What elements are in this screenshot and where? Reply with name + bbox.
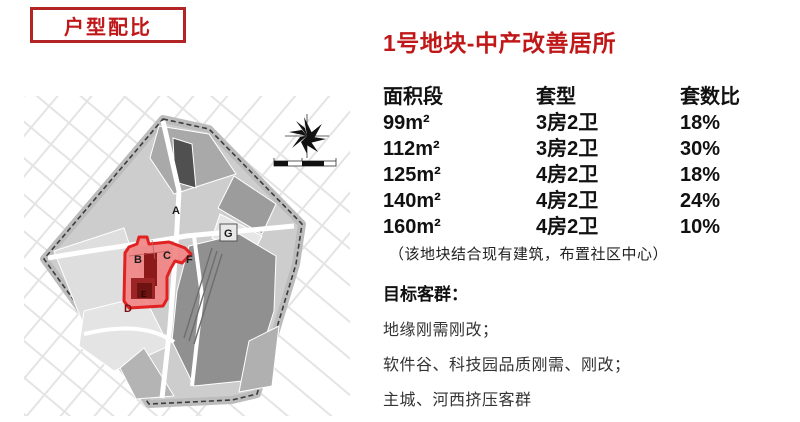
table-header-ratio: 套数比 — [675, 84, 783, 110]
site-plan-svg: A B C D E F G — [24, 96, 350, 416]
site-plan-map: A B C D E F G — [24, 96, 350, 416]
target-customers-heading: 目标客群： — [383, 280, 783, 305]
block-heading: 1号地块-中产改善居所 — [383, 24, 783, 58]
slide: 户型配比 — [0, 0, 800, 422]
table-cell: 99m² — [383, 110, 531, 136]
parcel-label-g: G — [224, 228, 233, 240]
parcel-label-d: D — [124, 303, 132, 315]
table-cell: 30% — [675, 136, 783, 162]
table-cell: 140m² — [383, 188, 531, 214]
table-cell: 4房2卫 — [531, 188, 675, 214]
parcel-label-b: B — [134, 254, 142, 266]
table-note: （该地块结合现有建筑，布置社区中心） — [383, 243, 783, 264]
table-cell: 18% — [675, 110, 783, 136]
page-title-box: 户型配比 — [30, 7, 186, 43]
north-compass-icon — [285, 114, 329, 158]
parcel-label-f: F — [186, 254, 193, 266]
table-cell: 10% — [675, 214, 783, 240]
target-line: 地缘刚需刚改； — [383, 316, 783, 340]
table-cell: 4房2卫 — [531, 162, 675, 188]
target-line: 软件谷、科技园品质刚需、刚改； — [383, 351, 783, 375]
scale-bar-icon — [274, 158, 336, 166]
table-cell: 160m² — [383, 214, 531, 240]
table-cell: 24% — [675, 188, 783, 214]
unit-mix-table: 面积段 套型 套数比 99m² 3房2卫 18% 112m² 3房2卫 30% … — [383, 84, 783, 240]
parcel-label-c: C — [163, 250, 171, 262]
info-panel: 1号地块-中产改善居所 面积段 套型 套数比 99m² 3房2卫 18% 112… — [383, 24, 783, 422]
target-line: 主城、河西挤压客群 — [383, 386, 783, 410]
table-header-type: 套型 — [531, 84, 675, 110]
table-cell: 18% — [675, 162, 783, 188]
target-customers-block: 目标客群： 地缘刚需刚改； 软件谷、科技园品质刚需、刚改； 主城、河西挤压客群 … — [383, 280, 783, 422]
parcel-label-e: E — [141, 290, 147, 299]
table-cell: 125m² — [383, 162, 531, 188]
parcel-label-a: A — [172, 205, 180, 217]
table-header-area: 面积段 — [383, 84, 531, 110]
table-cell: 112m² — [383, 136, 531, 162]
table-cell: 3房2卫 — [531, 110, 675, 136]
table-cell: 4房2卫 — [531, 214, 675, 240]
table-cell: 3房2卫 — [531, 136, 675, 162]
page-title: 户型配比 — [64, 11, 152, 40]
